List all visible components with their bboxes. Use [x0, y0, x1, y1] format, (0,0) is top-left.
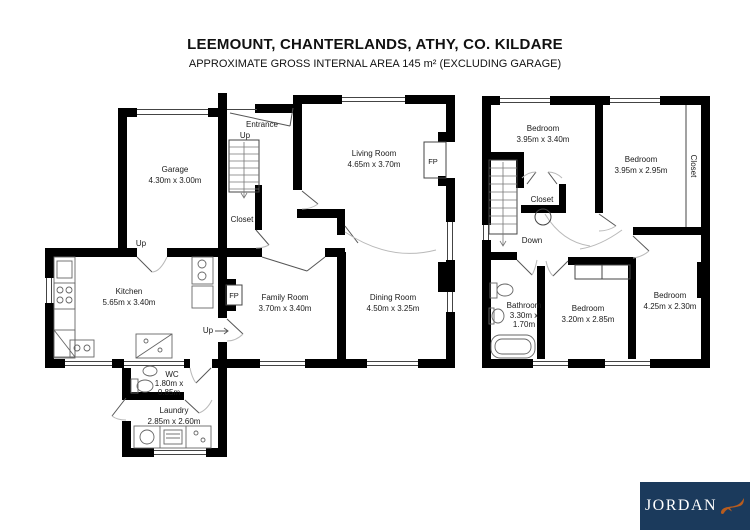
down-label: Down: [522, 236, 542, 245]
agency-brand-name: JORDAN: [645, 497, 717, 515]
bathroom-dims-2: 1.70m: [513, 320, 536, 329]
wc-fixtures: [131, 366, 157, 393]
bedroom3-dims: 3.20m x 2.85m: [562, 315, 615, 324]
bedroom2-dims: 3.95m x 2.95m: [615, 166, 668, 175]
wc-dims-1: 1.80m x: [155, 379, 183, 388]
up-label-step: Up: [203, 326, 214, 335]
closet-label-ground: Closet: [231, 215, 254, 224]
bedroom1-dims: 3.95m x 3.40m: [517, 135, 570, 144]
kitchen-dims: 5.65m x 3.40m: [103, 298, 156, 307]
ground-floor-plan: Garage 4.30m x 3.00m Entrance Up Living …: [45, 93, 455, 457]
ground-floor-labels: Garage 4.30m x 3.00m Entrance Up Living …: [103, 120, 438, 426]
fox-logo-icon: [719, 497, 745, 515]
up-label-garage: Up: [136, 239, 147, 248]
closet-label-mid: Closet: [531, 195, 554, 204]
ground-floor-walls: [45, 93, 455, 457]
page: { "header": { "title": "LEEMOUNT, CHANTE…: [0, 0, 750, 530]
bedroom1-label: Bedroom: [527, 124, 560, 133]
bedroom2-label: Bedroom: [625, 155, 658, 164]
living-room-dims: 4.65m x 3.70m: [348, 160, 401, 169]
bedroom4-dims: 4.25m x 2.30m: [644, 302, 697, 311]
bathroom-label: Bathroom: [507, 301, 542, 310]
first-floor-stairs: [489, 160, 517, 246]
bedroom4-label: Bedroom: [654, 291, 687, 300]
living-room-label: Living Room: [352, 149, 397, 158]
wc-dims-2: 0.85m: [158, 388, 181, 397]
kitchen-fixtures: [54, 257, 213, 358]
floor-plan-svg: Garage 4.30m x 3.00m Entrance Up Living …: [0, 0, 750, 530]
garage-dims: 4.30m x 3.00m: [149, 176, 202, 185]
laundry-dims: 2.85m x 2.60m: [148, 417, 201, 426]
ground-floor-stairs: [229, 140, 259, 198]
bathroom-dims-1: 3.30m x: [510, 311, 538, 320]
family-room-label: Family Room: [261, 293, 308, 302]
dining-room-dims: 4.50m x 3.25m: [367, 304, 420, 313]
fp-label-living: FP: [428, 157, 438, 166]
up-label-stairs: Up: [240, 131, 251, 140]
fp-label-family: FP: [229, 291, 239, 300]
entrance-label: Entrance: [246, 120, 279, 129]
dining-room-label: Dining Room: [370, 293, 417, 302]
kitchen-label: Kitchen: [116, 287, 143, 296]
closet-label-right: Closet: [689, 155, 698, 178]
first-floor-plan: Bedroom 3.95m x 3.40m Bedroom 3.95m x 2.…: [482, 96, 710, 368]
family-room-dims: 3.70m x 3.40m: [259, 304, 312, 313]
laundry-fixtures: [134, 426, 211, 448]
bedroom3-label: Bedroom: [572, 304, 605, 313]
agency-logo: JORDAN: [640, 482, 750, 530]
wc-label: WC: [165, 370, 179, 379]
garage-label: Garage: [162, 165, 189, 174]
laundry-label: Laundry: [160, 406, 189, 415]
